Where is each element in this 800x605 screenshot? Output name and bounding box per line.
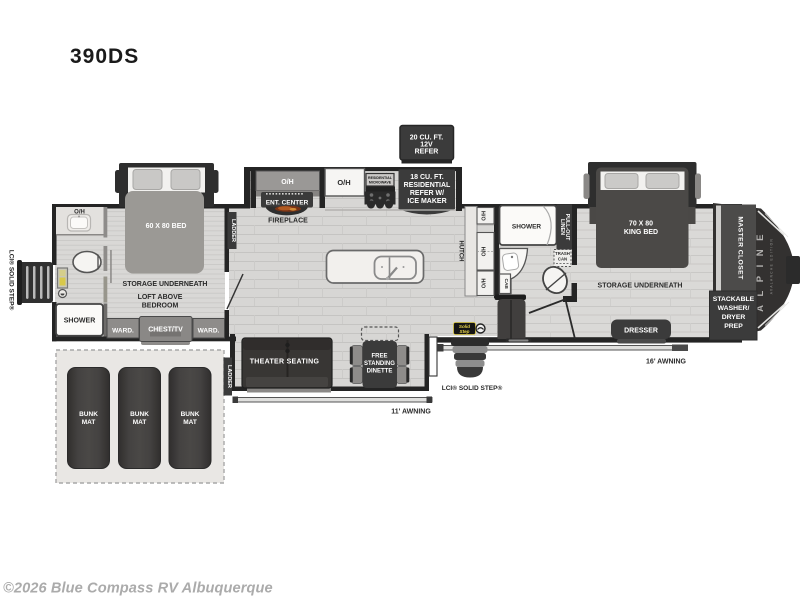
- svg-text:SHOWER: SHOWER: [512, 224, 542, 231]
- svg-text:O/H: O/H: [281, 179, 293, 186]
- svg-text:THEATER SEATING: THEATER SEATING: [250, 358, 320, 365]
- svg-text:DRESSER: DRESSER: [624, 328, 658, 335]
- svg-text:CHEST/TV: CHEST/TV: [148, 327, 183, 334]
- svg-text:O/H: O/H: [482, 247, 488, 257]
- svg-text:LCI® SOLID STEP®: LCI® SOLID STEP®: [442, 384, 503, 392]
- svg-text:STACKABLE: STACKABLE: [713, 296, 755, 303]
- svg-text:MAT: MAT: [82, 419, 96, 426]
- svg-text:RESIDENTIAL: RESIDENTIAL: [368, 176, 393, 180]
- svg-text:11' AWNING: 11' AWNING: [391, 409, 431, 416]
- svg-text:390DS: 390DS: [70, 45, 139, 68]
- svg-text:TRASH: TRASH: [555, 251, 570, 256]
- svg-text:70 X 80: 70 X 80: [629, 221, 653, 228]
- svg-text:BEDROOM: BEDROOM: [142, 303, 179, 310]
- svg-text:©2026 Blue Compass RV Albuquer: ©2026 Blue Compass RV Albuquerque: [3, 581, 273, 597]
- svg-text:CAB: CAB: [503, 278, 509, 289]
- svg-text:MICROWAVE: MICROWAVE: [369, 181, 392, 185]
- svg-text:ENT. CENTER: ENT. CENTER: [266, 200, 309, 207]
- svg-text:16' AWNING: 16' AWNING: [646, 359, 686, 366]
- svg-text:BUNK: BUNK: [79, 411, 98, 418]
- svg-text:CAN: CAN: [558, 257, 567, 262]
- svg-text:LADDER: LADDER: [230, 219, 236, 242]
- svg-text:O/H: O/H: [482, 278, 488, 288]
- svg-text:LADDER: LADDER: [226, 365, 232, 388]
- svg-text:LCI® SOLID STEP®: LCI® SOLID STEP®: [8, 250, 16, 311]
- svg-text:ICE MAKER: ICE MAKER: [407, 198, 446, 205]
- svg-text:PREP: PREP: [724, 323, 743, 330]
- svg-text:O/H: O/H: [337, 178, 350, 187]
- svg-text:FREE: FREE: [371, 354, 387, 360]
- svg-text:WASHER/: WASHER/: [718, 305, 750, 312]
- svg-text:BUNK: BUNK: [181, 411, 200, 418]
- svg-text:AVALANCHE EDITION: AVALANCHE EDITION: [770, 238, 774, 294]
- svg-text:18 CU. FT.: 18 CU. FT.: [410, 174, 444, 181]
- svg-text:LINEN: LINEN: [559, 219, 565, 235]
- svg-text:HUTCH: HUTCH: [458, 241, 464, 262]
- svg-text:O/H: O/H: [482, 211, 488, 221]
- svg-text:FIREPLACE: FIREPLACE: [268, 218, 308, 225]
- svg-text:Step: Step: [460, 329, 470, 334]
- svg-text:WARD.: WARD.: [112, 328, 134, 335]
- svg-text:60 X 80 BED: 60 X 80 BED: [146, 223, 187, 230]
- svg-text:SHOWER: SHOWER: [64, 318, 96, 325]
- svg-text:MAT: MAT: [133, 419, 147, 426]
- svg-text:DINETTE: DINETTE: [367, 369, 393, 375]
- svg-text:STORAGE UNDERNEATH: STORAGE UNDERNEATH: [123, 281, 208, 288]
- svg-text:STORAGE UNDERNEATH: STORAGE UNDERNEATH: [598, 283, 683, 290]
- svg-text:STANDING: STANDING: [364, 361, 395, 367]
- svg-text:BUNK: BUNK: [130, 411, 149, 418]
- svg-text:RESIDENTIAL: RESIDENTIAL: [404, 182, 451, 189]
- svg-text:REFER W/: REFER W/: [410, 190, 444, 197]
- svg-text:WARD.: WARD.: [198, 328, 220, 335]
- svg-text:DRYER: DRYER: [722, 314, 746, 321]
- svg-text:REFER: REFER: [415, 149, 439, 156]
- svg-text:KING BED: KING BED: [624, 229, 658, 236]
- svg-text:12V: 12V: [420, 142, 433, 149]
- svg-text:LOFT ABOVE: LOFT ABOVE: [138, 294, 183, 301]
- svg-text:MASTER CLOSET: MASTER CLOSET: [737, 216, 744, 280]
- svg-text:20 CU. FT.: 20 CU. FT.: [410, 134, 444, 141]
- svg-text:MAT: MAT: [183, 419, 197, 426]
